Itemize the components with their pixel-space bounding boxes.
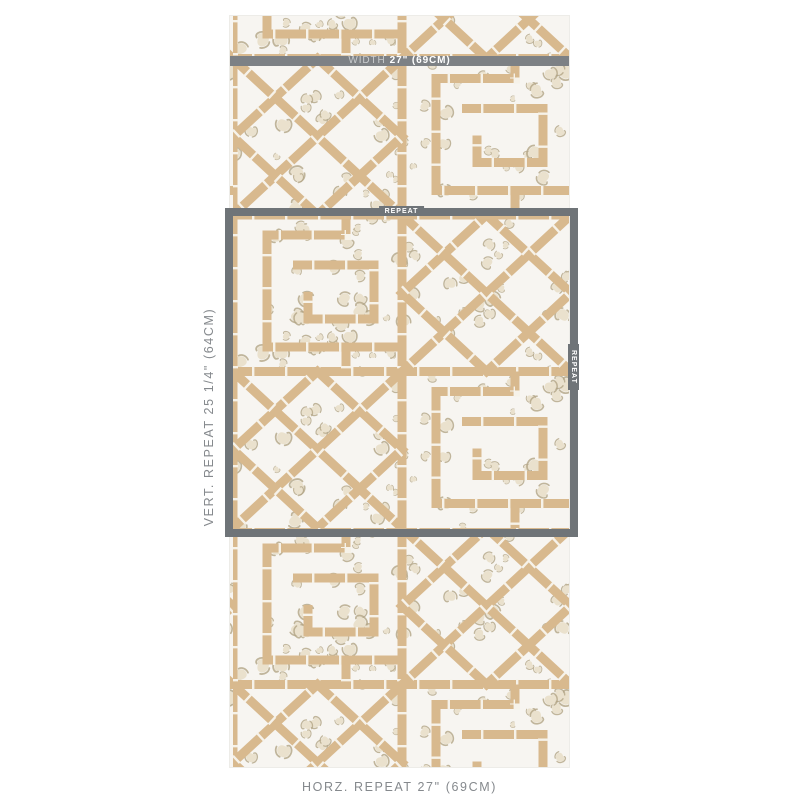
repeat-tag-right: REPEAT xyxy=(568,344,579,390)
horizontal-repeat-label: HORZ. REPEAT 27" (69CM) xyxy=(230,780,569,794)
repeat-tag-top: REPEAT xyxy=(379,206,425,216)
vertical-repeat-label: VERT. REPEAT 25 1/4" (64CM) xyxy=(202,308,216,527)
repeat-outline-box: REPEAT REPEAT xyxy=(225,208,578,537)
width-measure-bar: WIDTH 27" (69CM) xyxy=(230,56,569,66)
product-image-stage: WIDTH 27" (69CM) REPEAT REPEAT VERT. REP… xyxy=(0,0,800,800)
width-label: WIDTH xyxy=(348,56,385,66)
width-value: 27" (69CM) xyxy=(390,56,451,66)
